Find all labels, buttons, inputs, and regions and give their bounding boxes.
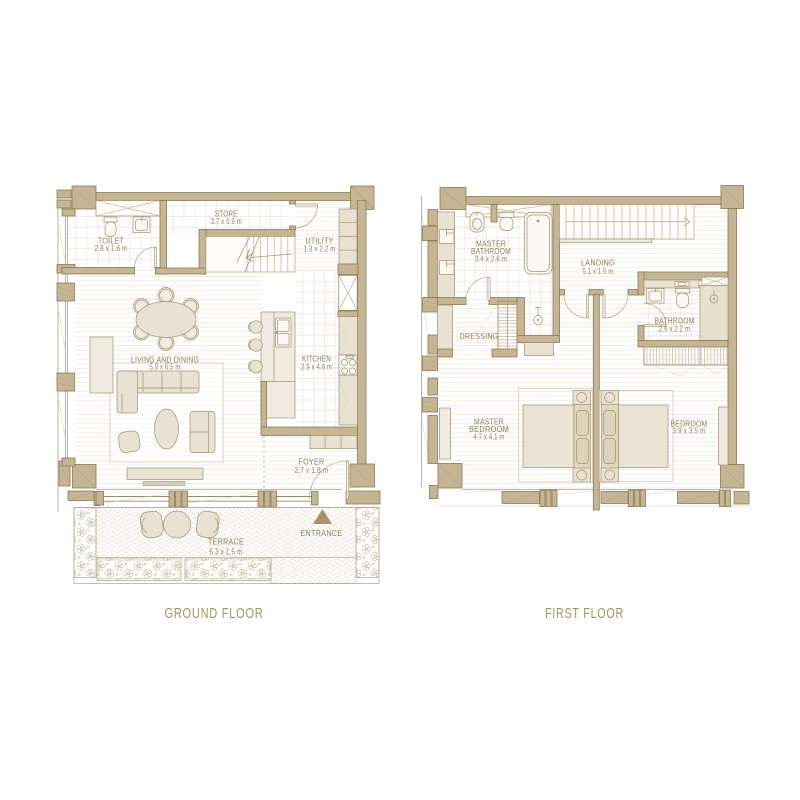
svg-text:4.7 x 4.1 m: 4.7 x 4.1 m	[474, 433, 505, 442]
svg-text:LANDING: LANDING	[581, 258, 615, 268]
svg-text:3.4 x 2.6 m: 3.4 x 2.6 m	[475, 255, 507, 264]
svg-text:TERRACE: TERRACE	[208, 537, 244, 547]
svg-text:1.3 x 2.2 m: 1.3 x 2.2 m	[304, 245, 336, 254]
svg-text:5.3 x 1.5 m: 5.3 x 1.5 m	[210, 548, 243, 557]
svg-text:GROUND FLOOR: GROUND FLOOR	[165, 605, 264, 622]
svg-text:3.9 x 3.5 m: 3.9 x 3.5 m	[673, 427, 706, 436]
svg-text:FOYER: FOYER	[299, 457, 325, 467]
svg-text:ENTRANCE: ENTRANCE	[301, 528, 343, 538]
svg-text:2.7 x 1.8 m: 2.7 x 1.8 m	[295, 466, 329, 475]
svg-text:2.6 x 2.2 m: 2.6 x 2.2 m	[659, 325, 690, 334]
svg-text:DRESSING: DRESSING	[460, 331, 499, 341]
svg-text:FIRST FLOOR: FIRST FLOOR	[545, 605, 624, 622]
svg-text:2.9 x 4.6 m: 2.9 x 4.6 m	[301, 363, 332, 372]
svg-text:2.8 x 1.6 m: 2.8 x 1.6 m	[95, 244, 128, 253]
svg-text:3.7 x 0.9 m: 3.7 x 0.9 m	[211, 217, 242, 226]
svg-text:5.1 x 1.5 m: 5.1 x 1.5 m	[583, 267, 614, 276]
svg-text:5.9 x 6.5 m: 5.9 x 6.5 m	[150, 362, 181, 371]
